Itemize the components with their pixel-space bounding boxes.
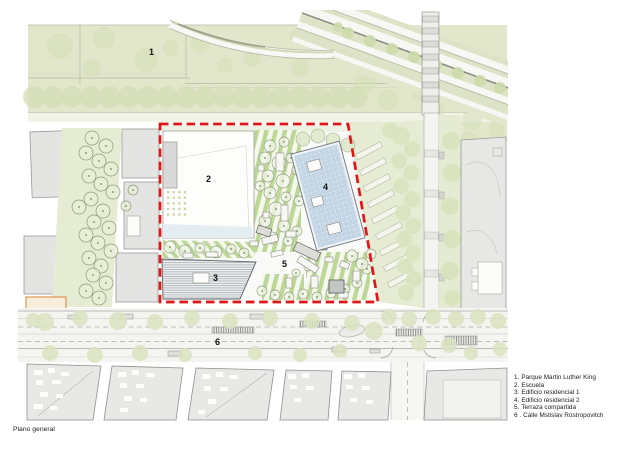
south-blocks [27,362,507,420]
legend-item: 2.Escuela [514,382,603,390]
plan-marker-6: 6 [215,338,220,347]
drawing-caption: Plano general [13,426,55,433]
crosswalk [396,329,422,336]
legend-item: 5.Terraza compartida [514,404,603,412]
legend-item: 6 .Calle Mstislav Rostropovitch [514,412,603,420]
project-site [160,124,378,302]
school-building [163,131,254,238]
legend-item: 3.Edificio residencial 1 [514,389,603,397]
plan-marker-5: 5 [282,260,287,269]
legend-item: 1.Parque Martin Luther King [514,374,603,382]
plan-marker-1: 1 [149,48,154,57]
plan-marker-3: 3 [213,274,218,283]
site-plan-page: 1 2 3 4 5 6 1.Parque Martin Luther King … [0,0,640,452]
legend-item: 4.Edificio residencial 2 [514,397,603,405]
legend: 1.Parque Martin Luther King 2.Escuela 3.… [514,374,603,420]
west-blocks [24,128,159,310]
plan-marker-4: 4 [323,183,328,192]
east-path [424,113,461,311]
plan-marker-2: 2 [206,175,211,184]
residential-building-1 [162,259,256,299]
street-band [18,308,508,363]
east-parcel [461,137,506,310]
